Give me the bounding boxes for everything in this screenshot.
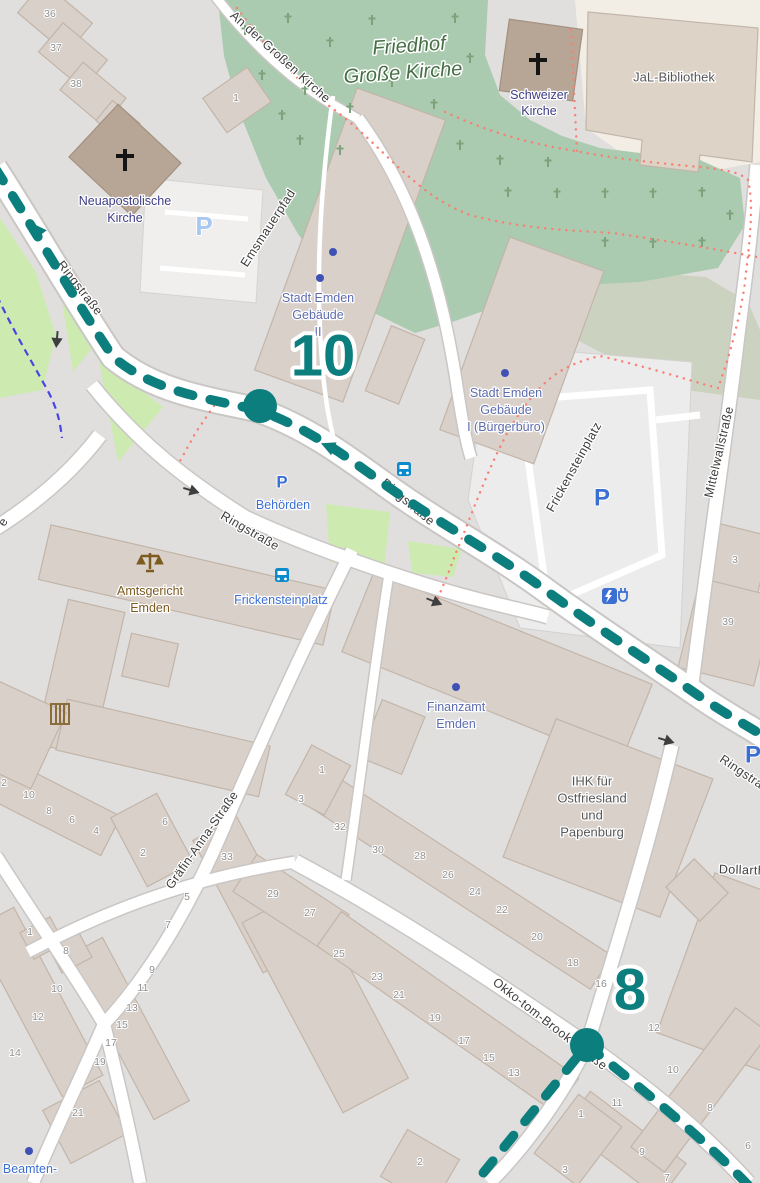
route-waypoint-dot-8: [570, 1028, 604, 1062]
house-number: 3: [732, 554, 738, 566]
house-number: 13: [508, 1067, 520, 1079]
house-number: 20: [531, 931, 543, 943]
house-number: 8: [46, 805, 52, 817]
house-number: 6: [745, 1140, 751, 1152]
house-number: 13: [126, 1002, 138, 1014]
poi-label-finanzamt-line2: Emden: [436, 717, 476, 731]
house-number: 29: [267, 888, 279, 900]
house-number: 37: [50, 42, 62, 54]
house-number: 10: [51, 983, 63, 995]
house-number: 1: [233, 92, 239, 104]
poi-label-behoerden: Behörden: [256, 498, 310, 512]
route-waypoint-dot-10: [243, 389, 277, 423]
house-number: 15: [116, 1019, 128, 1031]
house-number: 17: [105, 1037, 117, 1049]
parking-icon: P: [594, 485, 610, 512]
house-number: 21: [393, 989, 405, 1001]
house-number: 12: [648, 1022, 660, 1034]
house-number: 23: [371, 971, 383, 983]
house-number: 6: [69, 814, 75, 826]
house-number: 33: [221, 851, 233, 863]
poi-label-schweizer-kirche-line1: Schweizer: [510, 88, 568, 102]
parking-icon: P: [276, 473, 287, 492]
house-number: 1: [27, 926, 33, 938]
house-number: 3: [298, 793, 304, 805]
house-number: 8: [707, 1102, 713, 1114]
parking-icon: P: [195, 211, 212, 241]
house-number: 1: [578, 1108, 584, 1120]
poi-label-stadt-emden-1-line2: Gebäude: [480, 403, 531, 417]
house-number: 12: [32, 1011, 44, 1023]
house-number: 39: [722, 616, 734, 628]
poi-label-amtsgericht-line2: Emden: [130, 601, 170, 615]
house-number: 30: [372, 844, 384, 856]
route-marker-8-label: 8: [614, 958, 646, 1023]
house-number: 9: [639, 1146, 645, 1158]
house-number: 32: [334, 821, 346, 833]
poi-label-stadt-emden-1-line1: Stadt Emden: [470, 386, 542, 400]
house-number: 7: [165, 919, 171, 931]
house-number: 17: [458, 1035, 470, 1047]
poi-label-ihk-line2: Ostfriesland: [557, 791, 626, 806]
poi-label-stadt-emden-1-line3: I (Bürgerbüro): [467, 420, 545, 434]
house-number: 2: [140, 847, 146, 859]
house-number: 36: [44, 8, 56, 20]
house-number: 2: [417, 1156, 423, 1168]
route-marker-10-label: 10: [291, 324, 356, 389]
house-number: 25: [333, 948, 345, 960]
house-number: 28: [414, 850, 426, 862]
house-number: 14: [9, 1047, 21, 1059]
house-number: 11: [612, 1097, 623, 1109]
house-number: 16: [595, 978, 607, 990]
house-number: 15: [483, 1052, 495, 1064]
house-number: 5: [184, 891, 190, 903]
house-number: 7: [664, 1172, 670, 1183]
house-number: 26: [442, 869, 454, 881]
transit-label-frickensteinplatz: Frickensteinplatz: [234, 593, 328, 607]
house-number: 19: [94, 1056, 106, 1068]
house-number: 6: [162, 816, 168, 828]
parking-icon: P: [745, 742, 760, 769]
house-number: 4: [93, 825, 99, 837]
house-number: 38: [70, 78, 82, 90]
poi-label-finanzamt-line1: Finanzamt: [427, 700, 486, 714]
map-viewport[interactable]: An der Großen Kirche 3637381210864623357…: [0, 0, 760, 1183]
house-number: 21: [72, 1107, 84, 1119]
bus-stop-icon: [275, 568, 289, 582]
poi-label-stadt-emden-2-line2: Gebäude: [292, 308, 343, 322]
house-number: 24: [469, 886, 481, 898]
house-number: 8: [63, 945, 69, 957]
poi-label-ihk-line3: und: [581, 808, 603, 823]
map-canvas: An der Großen Kirche 3637381210864623357…: [0, 0, 760, 1183]
house-number: 1: [319, 764, 325, 776]
poi-label-stadt-emden-2-line1: Stadt Emden: [282, 291, 354, 305]
house-number: 3: [562, 1164, 568, 1176]
house-number: 22: [496, 904, 508, 916]
poi-label-jal-bibliothek: JaL-Bibliothek: [633, 70, 715, 85]
house-number: 19: [429, 1012, 441, 1024]
poi-label-ihk-line4: Papenburg: [560, 825, 624, 840]
house-number: 10: [23, 789, 35, 801]
poi-label-schweizer-kirche-line2: Kirche: [521, 104, 556, 118]
house-number: 18: [567, 957, 579, 969]
house-number: 27: [304, 907, 316, 919]
poi-label-neuapostolische-line1: Neuapostolische: [79, 194, 171, 208]
bus-stop-icon: [397, 462, 411, 476]
poi-label-neuapostolische-line2: Kirche: [107, 211, 142, 225]
house-number: 10: [667, 1064, 679, 1076]
poi-label-ihk-line1: IHK für: [572, 774, 613, 789]
street-label-dollarth: Dollarth: [719, 862, 760, 878]
poi-label-beamten: Beamten-: [3, 1162, 57, 1176]
house-number: 11: [138, 982, 149, 994]
poi-label-amtsgericht-line1: Amtsgericht: [117, 584, 184, 598]
house-number: 2: [1, 777, 7, 789]
house-number: 9: [149, 964, 155, 976]
